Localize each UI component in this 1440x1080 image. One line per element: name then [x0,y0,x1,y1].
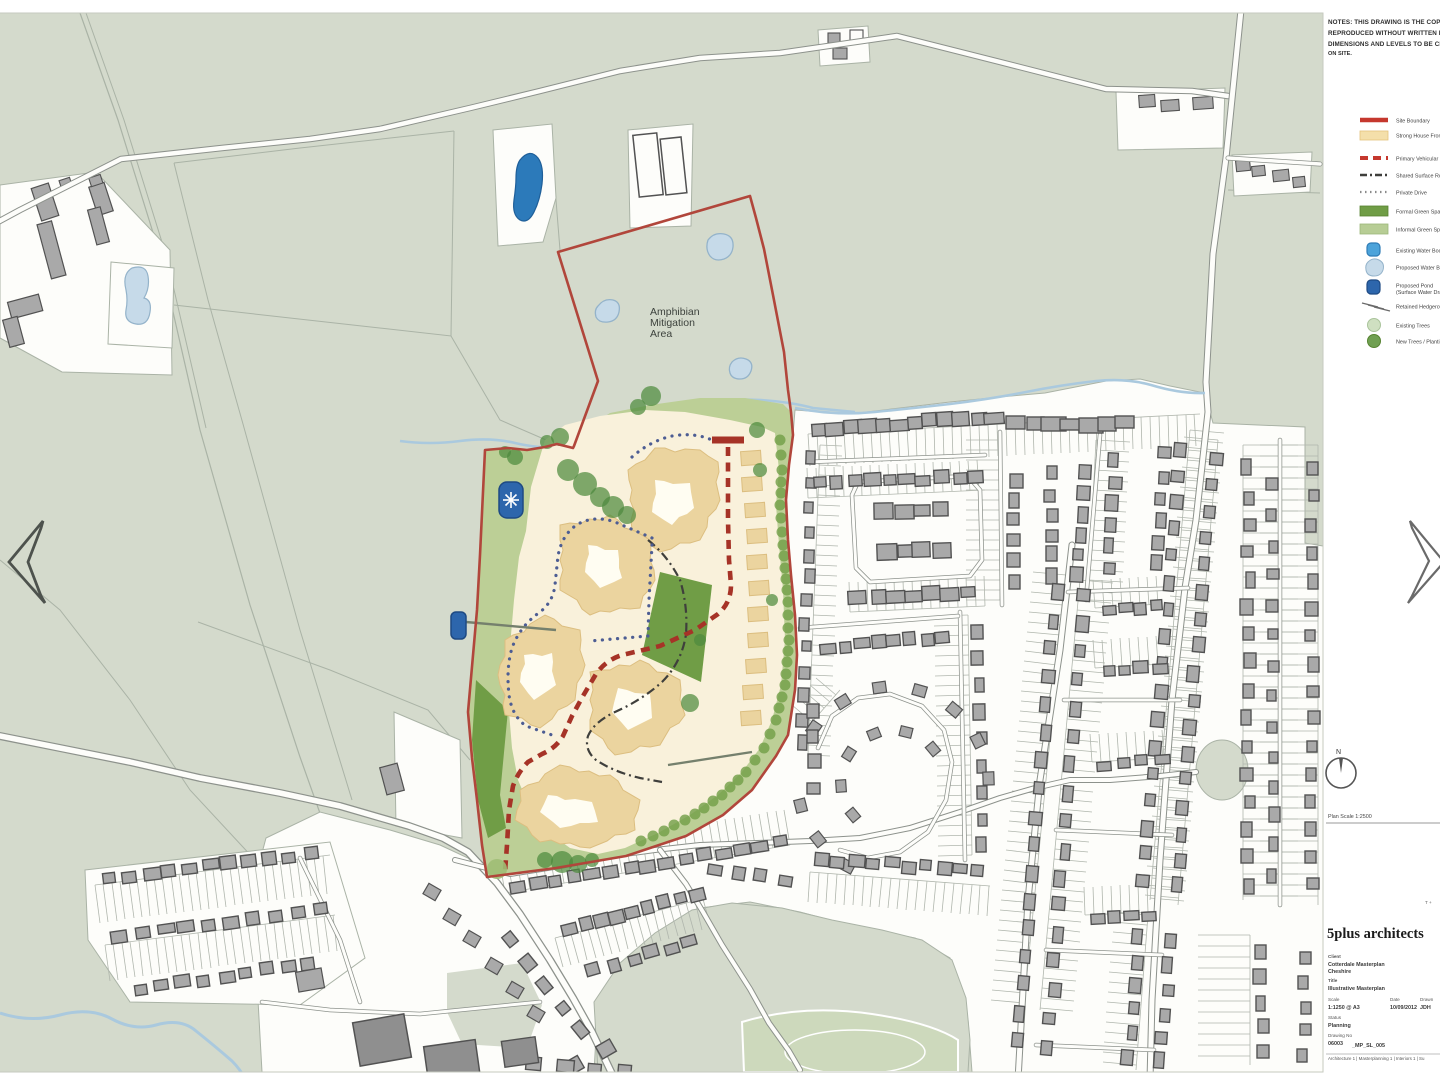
svg-text:5plus architects: 5plus architects [1327,926,1424,942]
svg-text:Drawn: Drawn [1420,997,1434,1002]
svg-text:Cheshire: Cheshire [1328,969,1351,975]
svg-text:10/09/2012: 10/09/2012 [1390,1005,1417,1011]
svg-text:Retained Hedgerows: Retained Hedgerows [1396,305,1440,311]
svg-text:Client: Client [1328,954,1341,959]
svg-text:Cotterdale Masterplan: Cotterdale Masterplan [1328,962,1385,968]
svg-text:Existing Trees: Existing Trees [1396,324,1430,330]
svg-text:Strong House Frontages: Strong House Frontages [1396,134,1440,140]
svg-text:NOTES: THIS DRAWING IS THE COP: NOTES: THIS DRAWING IS THE COPYRIGHT OF … [1328,19,1440,26]
svg-text:Plan Scale 1:2500: Plan Scale 1:2500 [1328,814,1372,820]
svg-text:(Surface Water Drainage): (Surface Water Drainage) [1396,290,1440,296]
svg-text:06003: 06003 [1328,1041,1343,1047]
svg-text:Scale: Scale [1328,997,1340,1002]
svg-text:Planning: Planning [1328,1023,1351,1029]
svg-text:Primary Vehicular Route: Primary Vehicular Route [1396,157,1440,163]
svg-text:Date: Date [1390,997,1400,1002]
svg-text:ON SITE.: ON SITE. [1328,51,1352,57]
svg-text:Title: Title [1328,978,1338,983]
svg-text:JDH: JDH [1420,1005,1431,1011]
svg-text:1:1250 @ A3: 1:1250 @ A3 [1328,1005,1360,1011]
svg-text:Drawing No: Drawing No [1328,1033,1352,1038]
svg-text:Illustrative Masterplan: Illustrative Masterplan [1328,986,1385,992]
svg-text:Informal Green Space: Informal Green Space [1396,228,1440,234]
svg-text:N: N [1336,749,1341,756]
svg-text:Shared Surface Route: Shared Surface Route [1396,174,1440,180]
svg-text:Formal Green Space: Formal Green Space [1396,210,1440,216]
svg-text:DIMENSIONS AND LEVELS TO BE CH: DIMENSIONS AND LEVELS TO BE CHECKED ON S… [1328,41,1440,48]
svg-text:Existing Water Bodies: Existing Water Bodies [1396,249,1440,255]
svg-text:Proposed Pond: Proposed Pond [1396,284,1433,290]
svg-text:New Trees / Planting: New Trees / Planting [1396,340,1440,346]
svg-text:T +: T + [1425,900,1432,905]
svg-text:Proposed Water Bodies: Proposed Water Bodies [1396,266,1440,272]
svg-text:Status: Status [1328,1015,1342,1020]
svg-text:Site Boundary: Site Boundary [1396,119,1430,125]
svg-text:REPRODUCED WITHOUT WRITTEN PER: REPRODUCED WITHOUT WRITTEN PERMISSION. D… [1328,30,1440,37]
svg-text:Private Drive: Private Drive [1396,191,1427,197]
svg-text:_MP_SL_005: _MP_SL_005 [1351,1043,1385,1049]
svg-text:Architecture 1 | Masterplan: Architecture 1 | Masterplanning 1 | Inte… [1328,1056,1425,1061]
